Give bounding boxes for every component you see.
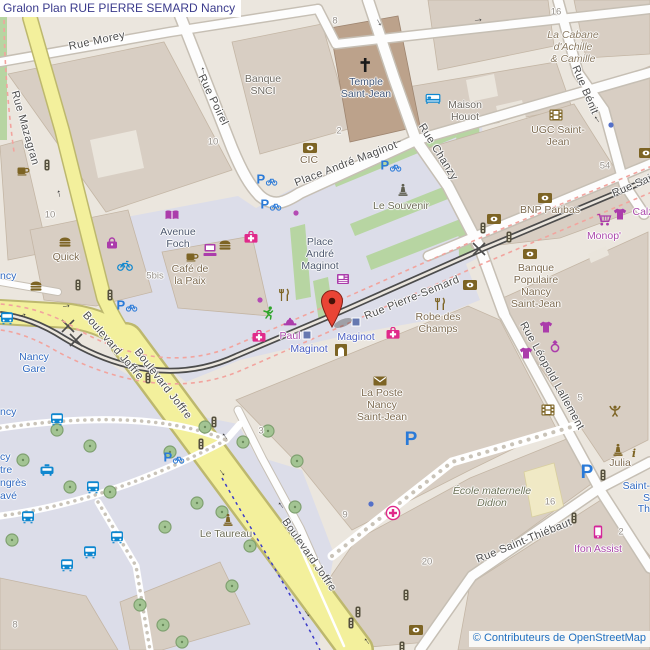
location-marker [318,288,358,330]
map-canvas[interactable]: iPPPPPPP→→→→→→→→→→→→→ Rue MoreyRue Mazag… [0,0,650,650]
page-title: Gralon Plan RUE PIERRE SEMARD Nancy [0,0,241,17]
attribution-link[interactable]: © Contributeurs de OpenStreetMap [469,631,650,647]
